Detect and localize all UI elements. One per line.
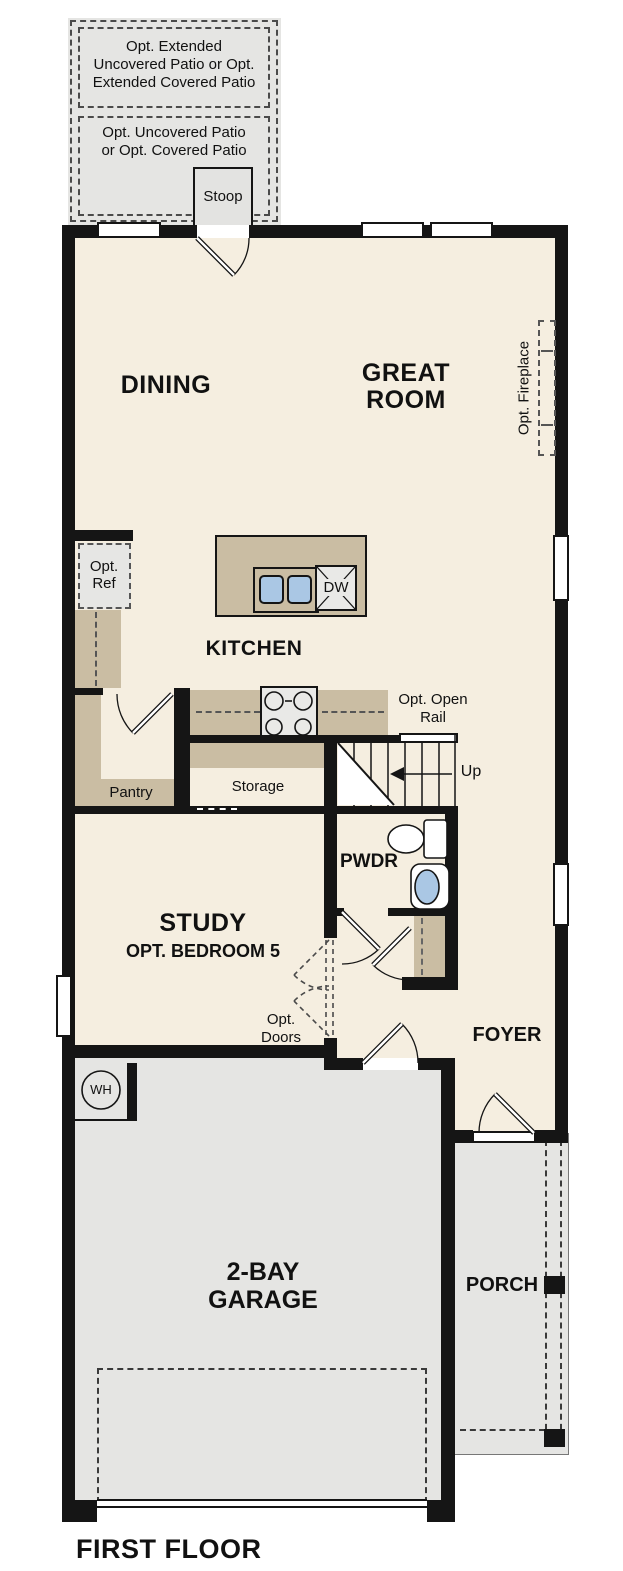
powder-room-label: PWDR [340,851,398,873]
storage-opening-dashes [197,808,237,810]
main-floor [75,238,555,1058]
wall-foyer-bottom-left [441,1130,473,1143]
wall-powder-right [445,806,458,990]
sink-basin-right [287,575,312,604]
range-counter-dashed-left [196,711,260,713]
dining-label: DINING [121,372,212,399]
back-door-opening [197,225,249,238]
patio-label: Opt. Uncovered Patio or Opt. Covered Pat… [101,124,246,160]
fireplace-label: Opt. Fireplace [515,341,532,435]
pantry-label: Pantry [109,784,152,801]
foyer-label: FOYER [473,1024,542,1047]
great-room-label: GREAT ROOM [362,360,450,414]
wall-powder-bottom-right [388,908,458,916]
wall-closet-bottom [402,977,458,990]
window-right-great-room [553,535,569,601]
garage-label: 2-BAY GARAGE [208,1258,318,1314]
window-great-room-1 [361,222,424,238]
fireplace-tick-top [541,350,553,352]
closet-rod-dashed-line [421,918,423,975]
wall-garage-bottom-right [427,1500,455,1522]
fireplace-tick-bottom [541,424,553,426]
up-label: Up [461,763,481,782]
study-option-label: OPT. BEDROOM 5 [126,941,280,962]
porch-post-lower [544,1429,565,1447]
wall-garage-right [441,1058,455,1522]
kitchen-label: KITCHEN [206,637,303,661]
storage-label: Storage [232,778,285,795]
garage-door-setback-dashed [97,1368,427,1503]
open-rail [399,733,458,743]
wall-powder-bottom-left [324,908,344,916]
porch-dashed-line-bottom [460,1429,545,1431]
plan-title: FIRST FLOOR [76,1534,261,1565]
wall-pantry-top [62,688,103,695]
range-counter-dashed-right [322,711,384,713]
wall-garage-top-left [337,1058,363,1070]
stove [260,686,318,738]
garage-door [97,1499,427,1508]
sink-basin-left [259,575,284,604]
window-great-room-2 [430,222,493,238]
water-heater-label: WH [90,1082,112,1097]
coat-closet [414,916,445,977]
counter-left-dashed-line [95,612,97,686]
stoop-label: Stoop [203,188,242,205]
front-door-threshold [472,1131,536,1143]
storage-shelf [190,742,324,768]
garage-door-opening-threshold [363,1058,418,1070]
porch-post-upper [544,1276,565,1294]
study-label: STUDY [159,910,246,937]
kitchen-counter-left [75,610,121,688]
wall-water-heater [127,1063,137,1121]
window-dining [97,222,161,238]
wall-garage-bottom-left [62,1500,97,1522]
floor-plan: Opt. Extended Uncovered Patio or Opt. Ex… [0,0,623,1571]
wall-pantry-right [174,688,190,814]
extended-patio-label: Opt. Extended Uncovered Patio or Opt. Ex… [93,38,256,92]
dishwasher-label: DW [323,579,350,596]
fireplace-optional-outline [538,320,556,456]
wall-hall-horizontal [62,806,458,814]
wall-foyer-bottom-right [535,1130,568,1143]
foyer-floor-south [455,1058,555,1133]
optional-doors-label: Opt. Doors [261,1011,301,1047]
wall-ref-stub [62,530,133,541]
wall-left [62,225,75,1522]
water-heater-shelf-line [75,1119,127,1121]
open-rail-label: Opt. Open Rail [398,691,467,727]
wall-counter-back [190,735,400,743]
window-right-foyer [553,863,569,926]
refrigerator-label: Opt. Ref [90,558,118,592]
wall-right [555,225,568,1143]
porch-label: PORCH [466,1274,538,1297]
window-left-study [56,975,72,1037]
